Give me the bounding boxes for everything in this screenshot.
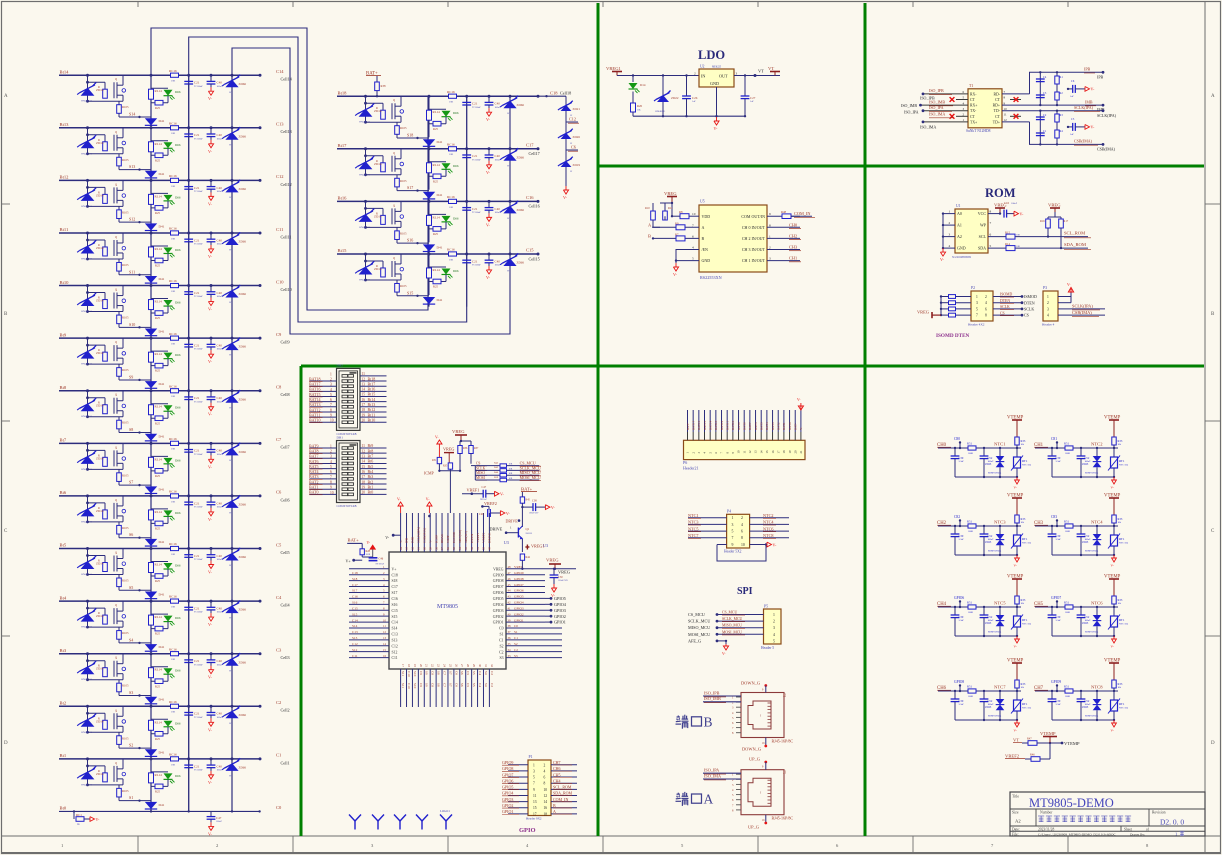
svg-text:C48: C48 <box>479 513 484 516</box>
svg-text:C3: C3 <box>276 647 282 652</box>
svg-text:C14: C14 <box>352 618 358 622</box>
svg-text:CS_MCU: CS_MCU <box>722 611 737 615</box>
svg-text:CH 3 IN/OUT: CH 3 IN/OUT <box>742 247 766 252</box>
svg-text:C30: C30 <box>558 576 563 579</box>
svg-text:10: 10 <box>330 491 334 495</box>
svg-text:ISO_IPB: ISO_IPB <box>704 690 720 695</box>
svg-text:R15: R15 <box>1005 231 1011 235</box>
svg-text:GND: GND <box>702 258 711 263</box>
svg-text:T1: T1 <box>969 84 973 88</box>
svg-text:12: 12 <box>748 450 752 454</box>
svg-text:IPB: IPB <box>1084 67 1091 72</box>
svg-text:17: 17 <box>362 403 366 407</box>
svg-text:A: A <box>1211 94 1215 99</box>
svg-text:CH2: CH2 <box>789 233 797 238</box>
svg-text:VREG1: VREG1 <box>531 544 545 549</box>
svg-text:NTC1: NTC1 <box>688 513 698 518</box>
svg-text:Bt16: Bt16 <box>338 196 348 201</box>
svg-text:4: 4 <box>544 769 546 773</box>
svg-text:S14: S14 <box>392 627 398 631</box>
svg-text:28: 28 <box>466 664 470 668</box>
svg-text:DOWN_G: DOWN_G <box>742 747 762 752</box>
svg-text:C0: C0 <box>514 624 518 628</box>
svg-text:BAT0: BAT0 <box>788 422 792 430</box>
svg-text:Cell3: Cell3 <box>281 655 290 660</box>
svg-text:S13: S13 <box>392 638 398 642</box>
svg-text:40: 40 <box>508 612 512 616</box>
svg-text:C9: C9 <box>419 671 423 675</box>
svg-text:Bt11: Bt11 <box>60 227 69 232</box>
svg-text:2: 2 <box>330 377 332 381</box>
svg-text:C16: C16 <box>352 595 358 599</box>
svg-text:Bt0: Bt0 <box>368 490 374 495</box>
svg-text:S5: S5 <box>129 585 133 590</box>
svg-text:MOSI_MCU: MOSI_MCU <box>520 475 541 480</box>
svg-text:3: 3 <box>330 383 332 387</box>
svg-text:RX+: RX+ <box>970 104 977 108</box>
svg-text:NTC8: NTC8 <box>1091 685 1103 690</box>
svg-text:38: 38 <box>508 624 512 628</box>
svg-text:NTC3: NTC3 <box>994 520 1006 525</box>
svg-text:CH0: CH0 <box>789 222 797 227</box>
svg-text:3: 3 <box>732 523 734 527</box>
svg-text:39: 39 <box>508 618 512 622</box>
svg-text:DRIVE: DRIVE <box>488 533 492 543</box>
svg-text:SDA_ROM: SDA_ROM <box>553 791 573 796</box>
svg-text:R28: R28 <box>366 550 371 553</box>
svg-text:S1: S1 <box>514 630 518 634</box>
svg-text:SCL: SCL <box>979 234 987 239</box>
svg-text:Bt18: Bt18 <box>338 90 348 95</box>
svg-text:61: 61 <box>417 547 421 551</box>
svg-text:C0: C0 <box>499 627 504 631</box>
svg-text:S13: S13 <box>129 164 135 169</box>
svg-text:9: 9 <box>330 414 332 418</box>
svg-text:A: A <box>702 225 705 230</box>
svg-text:57: 57 <box>440 547 444 551</box>
svg-text:S5: S5 <box>472 683 476 687</box>
svg-text:S11: S11 <box>401 683 405 688</box>
svg-text:19: 19 <box>788 450 792 454</box>
svg-text:Cell14: Cell14 <box>281 77 293 82</box>
svg-text:VREG: VREG <box>493 567 504 571</box>
svg-text:ISO_IPB: ISO_IPB <box>929 88 944 93</box>
svg-text:C13: C13 <box>276 122 284 127</box>
svg-text:D2. 0. 0: D2. 0. 0 <box>1160 818 1184 827</box>
svg-text:S17: S17 <box>407 185 413 190</box>
svg-text:1: 1 <box>1047 295 1049 299</box>
svg-text:59: 59 <box>428 547 432 551</box>
svg-text:100nF/50V: 100nF/50V <box>558 580 568 582</box>
svg-text:Cell18: Cell18 <box>560 90 571 95</box>
svg-text:V-: V- <box>486 117 491 122</box>
svg-text:35: 35 <box>508 642 512 646</box>
svg-text:C16: C16 <box>526 195 534 200</box>
svg-text:GPIO4: GPIO4 <box>514 601 524 605</box>
svg-text:55: 55 <box>452 547 456 551</box>
svg-text:V-: V- <box>773 542 778 547</box>
svg-text:V+: V+ <box>346 559 352 564</box>
svg-text:3: 3 <box>769 257 771 261</box>
svg-text:IBIAS: IBIAS <box>440 534 444 543</box>
svg-text:R46: R46 <box>1030 754 1035 757</box>
svg-text:ROM: ROM <box>985 186 1016 200</box>
svg-text:C5: C5 <box>276 542 282 547</box>
svg-text:33: 33 <box>508 654 512 658</box>
svg-text:GPIO3: GPIO3 <box>502 797 513 802</box>
svg-text:4: 4 <box>330 460 332 464</box>
svg-text:D: D <box>1211 741 1215 746</box>
svg-text:S10: S10 <box>413 671 417 677</box>
svg-text:V-: V- <box>551 593 556 598</box>
svg-text:8: 8 <box>330 480 332 484</box>
svg-text:16: 16 <box>383 654 387 658</box>
svg-text:Cell7: Cell7 <box>281 445 290 450</box>
svg-text:B: B <box>553 803 556 808</box>
svg-text:V-: V- <box>208 570 213 575</box>
svg-text:C7: C7 <box>276 437 282 442</box>
svg-text:MT9805: MT9805 <box>437 604 458 610</box>
svg-text:CH 2 IN/OUT: CH 2 IN/OUT <box>742 236 766 241</box>
svg-text:37: 37 <box>508 630 512 634</box>
svg-text:VREG: VREG <box>917 310 930 315</box>
svg-text:C11: C11 <box>276 227 283 232</box>
svg-text:S14: S14 <box>352 624 358 628</box>
svg-text:BAT-: BAT- <box>794 423 798 430</box>
svg-text:S16: S16 <box>392 603 398 607</box>
svg-text:S14: S14 <box>129 112 135 117</box>
svg-text:A1: A1 <box>957 223 962 228</box>
svg-text:1: 1 <box>949 210 951 214</box>
svg-text:10: 10 <box>692 212 696 216</box>
svg-text:C1: C1 <box>276 753 281 758</box>
svg-text:C13: C13 <box>352 630 358 634</box>
svg-text:V-: V- <box>208 201 213 206</box>
svg-text:ZD22: ZD22 <box>671 96 679 100</box>
svg-text:C17: C17 <box>352 583 358 587</box>
svg-text:ISO_IMA: ISO_IMA <box>929 111 945 116</box>
svg-text:5: 5 <box>330 465 332 469</box>
svg-text:50: 50 <box>482 547 486 551</box>
svg-text:SCLK(IPA): SCLK(IPA) <box>1074 105 1094 110</box>
svg-text:S10: S10 <box>129 322 135 327</box>
svg-text:NTC1: NTC1 <box>994 442 1006 447</box>
svg-text:18: 18 <box>362 408 366 412</box>
svg-text:C6: C6 <box>571 145 576 150</box>
svg-text:Cell4: Cell4 <box>281 603 291 608</box>
svg-text:SPI: SPI <box>737 586 753 597</box>
svg-text:R11: R11 <box>668 207 673 210</box>
svg-text:R38: R38 <box>381 84 387 88</box>
svg-text:ICMP: ICMP <box>424 471 435 476</box>
svg-text:V-: V- <box>208 675 213 680</box>
svg-text:BAT5: BAT5 <box>760 422 764 430</box>
svg-text:R44: R44 <box>526 556 531 559</box>
svg-text:15: 15 <box>362 465 366 469</box>
svg-text:GPIO6: GPIO6 <box>493 591 504 595</box>
svg-text:11: 11 <box>533 794 537 798</box>
svg-text:41: 41 <box>508 606 512 610</box>
svg-text:C18: C18 <box>352 571 358 575</box>
svg-text:VREG1: VREG1 <box>606 66 622 71</box>
svg-text:CH5: CH5 <box>553 772 561 777</box>
svg-text:S10: S10 <box>413 683 417 689</box>
svg-text:1uF: 1uF <box>692 100 696 103</box>
svg-text:D: D <box>4 741 8 746</box>
svg-text:VTEMP: VTEMP <box>1007 659 1024 664</box>
svg-text:GPIO8: GPIO8 <box>514 577 524 581</box>
svg-text:S15: S15 <box>407 290 413 295</box>
svg-text:V-: V- <box>208 780 213 785</box>
svg-text:C46: C46 <box>379 558 384 561</box>
svg-text:V-: V- <box>506 511 511 516</box>
svg-text:VT: VT <box>768 66 774 71</box>
svg-text:DB2: DB2 <box>337 363 344 367</box>
svg-text:S15: S15 <box>352 612 358 616</box>
svg-text:DOWN_G: DOWN_G <box>741 681 761 686</box>
svg-text:C17: C17 <box>526 142 534 147</box>
svg-text:Cell1: Cell1 <box>281 760 290 765</box>
svg-text:Bt3: Bt3 <box>60 648 67 653</box>
svg-text:Revision: Revision <box>1152 811 1166 815</box>
svg-text:VREF1: VREF1 <box>467 488 480 493</box>
svg-text:BAT10: BAT10 <box>309 418 321 423</box>
svg-text:100nF: 100nF <box>216 821 223 823</box>
svg-text:VTEMP: VTEMP <box>1040 731 1056 736</box>
svg-text:NP/100nF: NP/100nF <box>376 563 385 565</box>
svg-text:GPIO4: GPIO4 <box>502 791 513 796</box>
svg-text:MT9805-DEMO: MT9805-DEMO <box>1029 796 1114 810</box>
svg-text:Bt7: Bt7 <box>60 438 67 443</box>
svg-text:RD-: RD- <box>993 92 1000 96</box>
svg-text:WDT: WDT <box>446 534 450 543</box>
svg-text:B: B <box>648 234 651 239</box>
svg-text:BAT12: BAT12 <box>720 420 724 430</box>
svg-text:R14: R14 <box>1005 242 1011 246</box>
svg-text:VREG: VREG <box>452 429 465 434</box>
svg-text:Bt2: Bt2 <box>60 700 67 705</box>
svg-text:S8: S8 <box>129 427 133 432</box>
svg-text:Date:: Date: <box>1012 827 1020 831</box>
svg-text:GPIO3: GPIO3 <box>554 608 566 613</box>
svg-text:GPIO7: GPIO7 <box>1051 596 1061 600</box>
svg-text:V-: V- <box>208 412 213 417</box>
svg-text:8: 8 <box>985 314 987 318</box>
svg-text:GPIO4: GPIO4 <box>554 602 567 607</box>
svg-text:RJ45-16P/8C: RJ45-16P/8C <box>772 816 794 821</box>
svg-text:S5: S5 <box>472 671 476 675</box>
svg-text:BAT16: BAT16 <box>697 420 701 430</box>
svg-text:49: 49 <box>488 547 492 551</box>
svg-text:C6: C6 <box>454 671 458 675</box>
svg-text:C16: C16 <box>392 597 398 601</box>
svg-text:ISO_IMA: ISO_IMA <box>704 773 721 778</box>
svg-text:21: 21 <box>799 450 803 454</box>
svg-text:18: 18 <box>407 664 411 668</box>
svg-text:GPIO2: GPIO2 <box>502 803 513 808</box>
svg-text:ISOMD: ISOMD <box>1000 293 1012 297</box>
svg-text:GPIO3: GPIO3 <box>514 606 524 610</box>
svg-text:V-: V- <box>208 149 213 154</box>
svg-text:V-: V- <box>486 275 491 280</box>
svg-text:9: 9 <box>769 212 771 216</box>
svg-text:GPIO5: GPIO5 <box>554 596 566 601</box>
svg-text:CH7: CH7 <box>553 760 561 765</box>
svg-text:R45: R45 <box>526 499 531 502</box>
svg-text:C7: C7 <box>442 671 446 675</box>
svg-text:13: 13 <box>754 450 758 454</box>
svg-text:VTEMP: VTEMP <box>1104 416 1121 421</box>
svg-text:14: 14 <box>362 460 366 464</box>
svg-text:4: 4 <box>773 633 775 637</box>
svg-text:SuNkT N12HD8: SuNkT N12HD8 <box>966 129 991 133</box>
svg-text:ISO_IMB: ISO_IMB <box>929 99 945 104</box>
svg-text:7: 7 <box>330 475 332 479</box>
svg-text:V-: V- <box>500 492 505 497</box>
svg-text:10R: 10R <box>1016 245 1020 248</box>
svg-text:V-: V- <box>208 464 213 469</box>
svg-text:6: 6 <box>985 307 987 311</box>
svg-text:SDA: SDA <box>978 246 986 251</box>
svg-text:6: 6 <box>330 470 332 474</box>
svg-text:C0: C0 <box>276 805 282 810</box>
svg-text:11: 11 <box>383 624 386 628</box>
svg-text:GPIO5: GPIO5 <box>502 785 513 790</box>
svg-text:48: 48 <box>508 565 512 569</box>
svg-text:45: 45 <box>508 583 512 587</box>
svg-text:Bt10: Bt10 <box>60 280 70 285</box>
svg-text:BAT0: BAT0 <box>309 490 319 495</box>
svg-text:7: 7 <box>692 223 694 227</box>
svg-text:C4: C4 <box>478 671 482 675</box>
svg-text:100R: 100R <box>366 554 371 556</box>
svg-text:C16: C16 <box>1004 201 1010 205</box>
svg-text:S16: S16 <box>352 601 358 605</box>
svg-text:C4: C4 <box>478 683 482 687</box>
svg-text:SCLK: SCLK <box>476 466 486 470</box>
svg-text:GPIO1: GPIO1 <box>514 618 524 622</box>
svg-text:VREG: VREG <box>443 447 454 452</box>
svg-text:14: 14 <box>759 450 763 454</box>
svg-text:3: 3 <box>1047 307 1049 311</box>
svg-text:S8: S8 <box>437 671 441 675</box>
svg-text:CT: CT <box>970 98 976 102</box>
svg-text:CH4: CH4 <box>553 778 561 783</box>
svg-text:7: 7 <box>533 782 535 786</box>
svg-text:V-: V- <box>551 505 556 510</box>
svg-text:C7: C7 <box>442 683 446 687</box>
svg-text:Size: Size <box>1012 811 1019 815</box>
svg-text:IMB: IMB <box>411 536 415 543</box>
svg-text:R37: R37 <box>474 447 479 450</box>
svg-text:Header 4X2: Header 4X2 <box>968 323 985 327</box>
svg-text:S18: S18 <box>407 133 413 138</box>
svg-text:2: 2 <box>949 221 951 225</box>
svg-text:IPB: IPB <box>1097 75 1104 80</box>
svg-text:10: 10 <box>741 543 745 547</box>
svg-text:42: 42 <box>508 601 512 605</box>
svg-text:V-: V- <box>940 257 945 262</box>
svg-text:VREG: VREG <box>1048 203 1061 208</box>
svg-text:VREG: VREG <box>664 191 677 196</box>
svg-text:SCLK(IPA): SCLK(IPA) <box>1097 113 1117 118</box>
svg-text:63: 63 <box>405 547 409 551</box>
svg-text:22: 22 <box>431 664 435 668</box>
svg-text:GPIO: GPIO <box>519 827 536 834</box>
svg-text:ISO_IPA: ISO_IPA <box>704 768 719 773</box>
svg-text:32: 32 <box>490 664 494 668</box>
svg-text:GPIO6: GPIO6 <box>954 596 964 600</box>
svg-text:3: 3 <box>773 626 775 630</box>
svg-text:58: 58 <box>434 547 438 551</box>
svg-text:5: 5 <box>732 530 734 534</box>
svg-text:S3: S3 <box>129 690 133 695</box>
svg-text:GND: GND <box>710 81 719 86</box>
svg-text:SS8550: SS8550 <box>526 533 532 535</box>
svg-text:19: 19 <box>362 413 366 417</box>
svg-text:1: 1 <box>976 295 978 299</box>
svg-text:R48: R48 <box>781 210 787 214</box>
svg-text:6: 6 <box>544 776 546 780</box>
svg-text:P2: P2 <box>971 286 975 290</box>
svg-text:P6: P6 <box>683 460 687 465</box>
svg-text:C15: C15 <box>352 606 358 610</box>
svg-text:VTEMP: VTEMP <box>1007 494 1024 499</box>
svg-text:S4: S4 <box>484 683 488 687</box>
svg-text:V-: V- <box>208 622 213 627</box>
svg-text:NTC5: NTC5 <box>994 601 1006 606</box>
svg-text:1: 1 <box>330 444 332 448</box>
svg-text:56: 56 <box>446 547 450 551</box>
svg-text:MISO_MCU: MISO_MCU <box>688 625 710 630</box>
svg-text:CH1: CH1 <box>789 256 797 261</box>
svg-text:GPIO9: GPIO9 <box>502 760 513 765</box>
svg-text:S6: S6 <box>460 683 464 687</box>
svg-text:2: 2 <box>773 620 775 624</box>
svg-text:16: 16 <box>544 806 548 810</box>
svg-text:10R: 10R <box>509 478 513 480</box>
svg-text:R9: R9 <box>675 221 679 225</box>
svg-text:V-: V- <box>208 96 213 101</box>
svg-text:VTEMP: VTEMP <box>1007 575 1024 580</box>
svg-text:C2: C2 <box>514 648 518 652</box>
svg-text:GPIO1: GPIO1 <box>502 809 513 814</box>
svg-text:BAT+: BAT+ <box>686 422 690 430</box>
svg-text:GPIO5: GPIO5 <box>514 595 524 599</box>
svg-text:11: 11 <box>362 444 366 448</box>
svg-text:C18: C18 <box>550 90 558 95</box>
svg-text:NTC2: NTC2 <box>1091 442 1103 447</box>
svg-text:S7: S7 <box>129 480 133 485</box>
svg-text:P1: P1 <box>529 755 533 759</box>
svg-text:GPIO7: GPIO7 <box>493 585 504 589</box>
svg-text:GPIO9: GPIO9 <box>514 571 524 575</box>
svg-text:S9: S9 <box>425 683 429 687</box>
svg-text:CT: CT <box>995 98 1001 102</box>
svg-text:C11: C11 <box>392 656 398 660</box>
svg-text:2: 2 <box>985 295 987 299</box>
svg-text:Cell12: Cell12 <box>281 182 292 187</box>
svg-text:VREG: VREG <box>558 570 571 575</box>
svg-text:14: 14 <box>383 642 387 646</box>
svg-text:C10: C10 <box>407 683 411 689</box>
svg-text:Bt9: Bt9 <box>60 332 67 337</box>
svg-text:V-: V- <box>208 254 213 259</box>
svg-text:S6: S6 <box>460 671 464 675</box>
svg-text:Bt17: Bt17 <box>338 143 348 148</box>
svg-text:Bt0: Bt0 <box>60 805 67 810</box>
svg-text:AFE_G: AFE_G <box>688 638 701 643</box>
